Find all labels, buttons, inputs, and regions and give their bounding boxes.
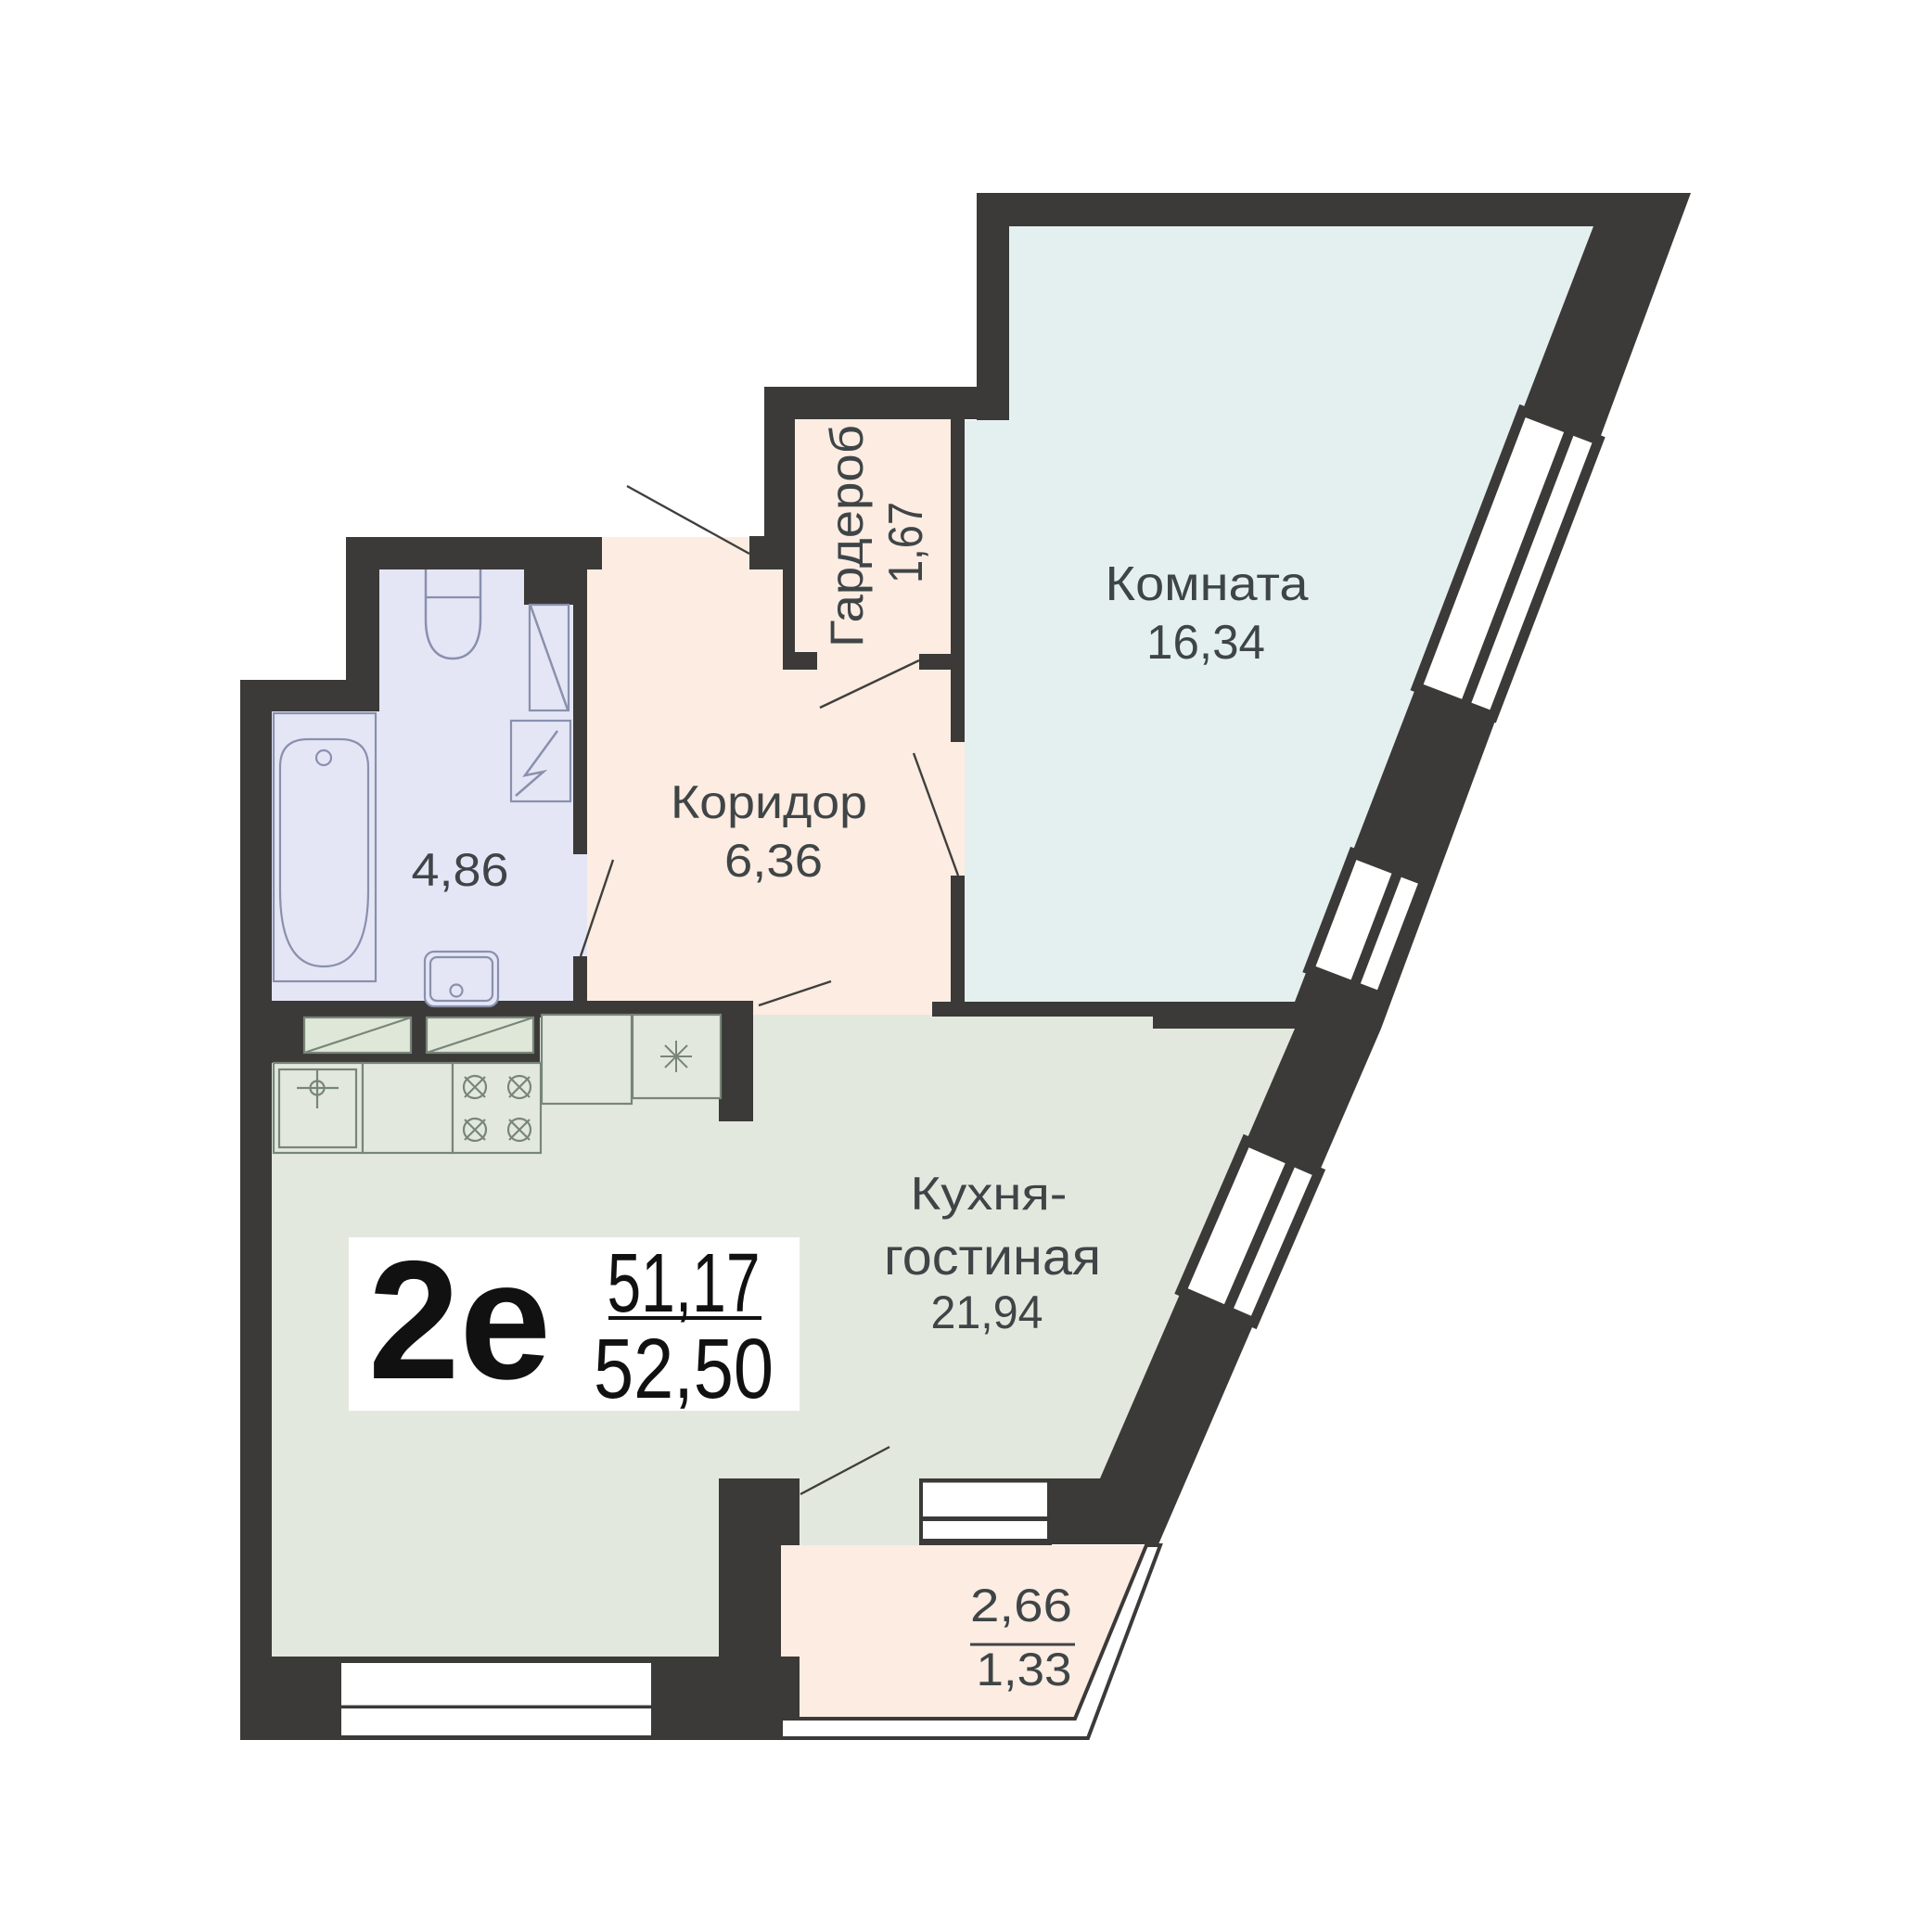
svg-text:Кухня-: Кухня- [911, 1168, 1068, 1220]
svg-text:6,36: 6,36 [724, 835, 823, 887]
svg-text:Комната: Комната [1106, 557, 1309, 611]
svg-text:1,33: 1,33 [977, 1644, 1072, 1695]
svg-text:21,94: 21,94 [931, 1286, 1043, 1338]
svg-text:2е: 2е [368, 1225, 551, 1414]
svg-text:4,86: 4,86 [412, 844, 509, 896]
svg-text:гостиная: гостиная [884, 1227, 1101, 1286]
svg-text:2,66: 2,66 [970, 1580, 1072, 1631]
svg-text:Гардероб: Гардероб [821, 425, 873, 647]
svg-text:Коридор: Коридор [671, 776, 867, 828]
svg-text:52,50: 52,50 [594, 1322, 774, 1416]
svg-text:16,34: 16,34 [1146, 616, 1265, 670]
svg-text:1,67: 1,67 [879, 502, 933, 583]
